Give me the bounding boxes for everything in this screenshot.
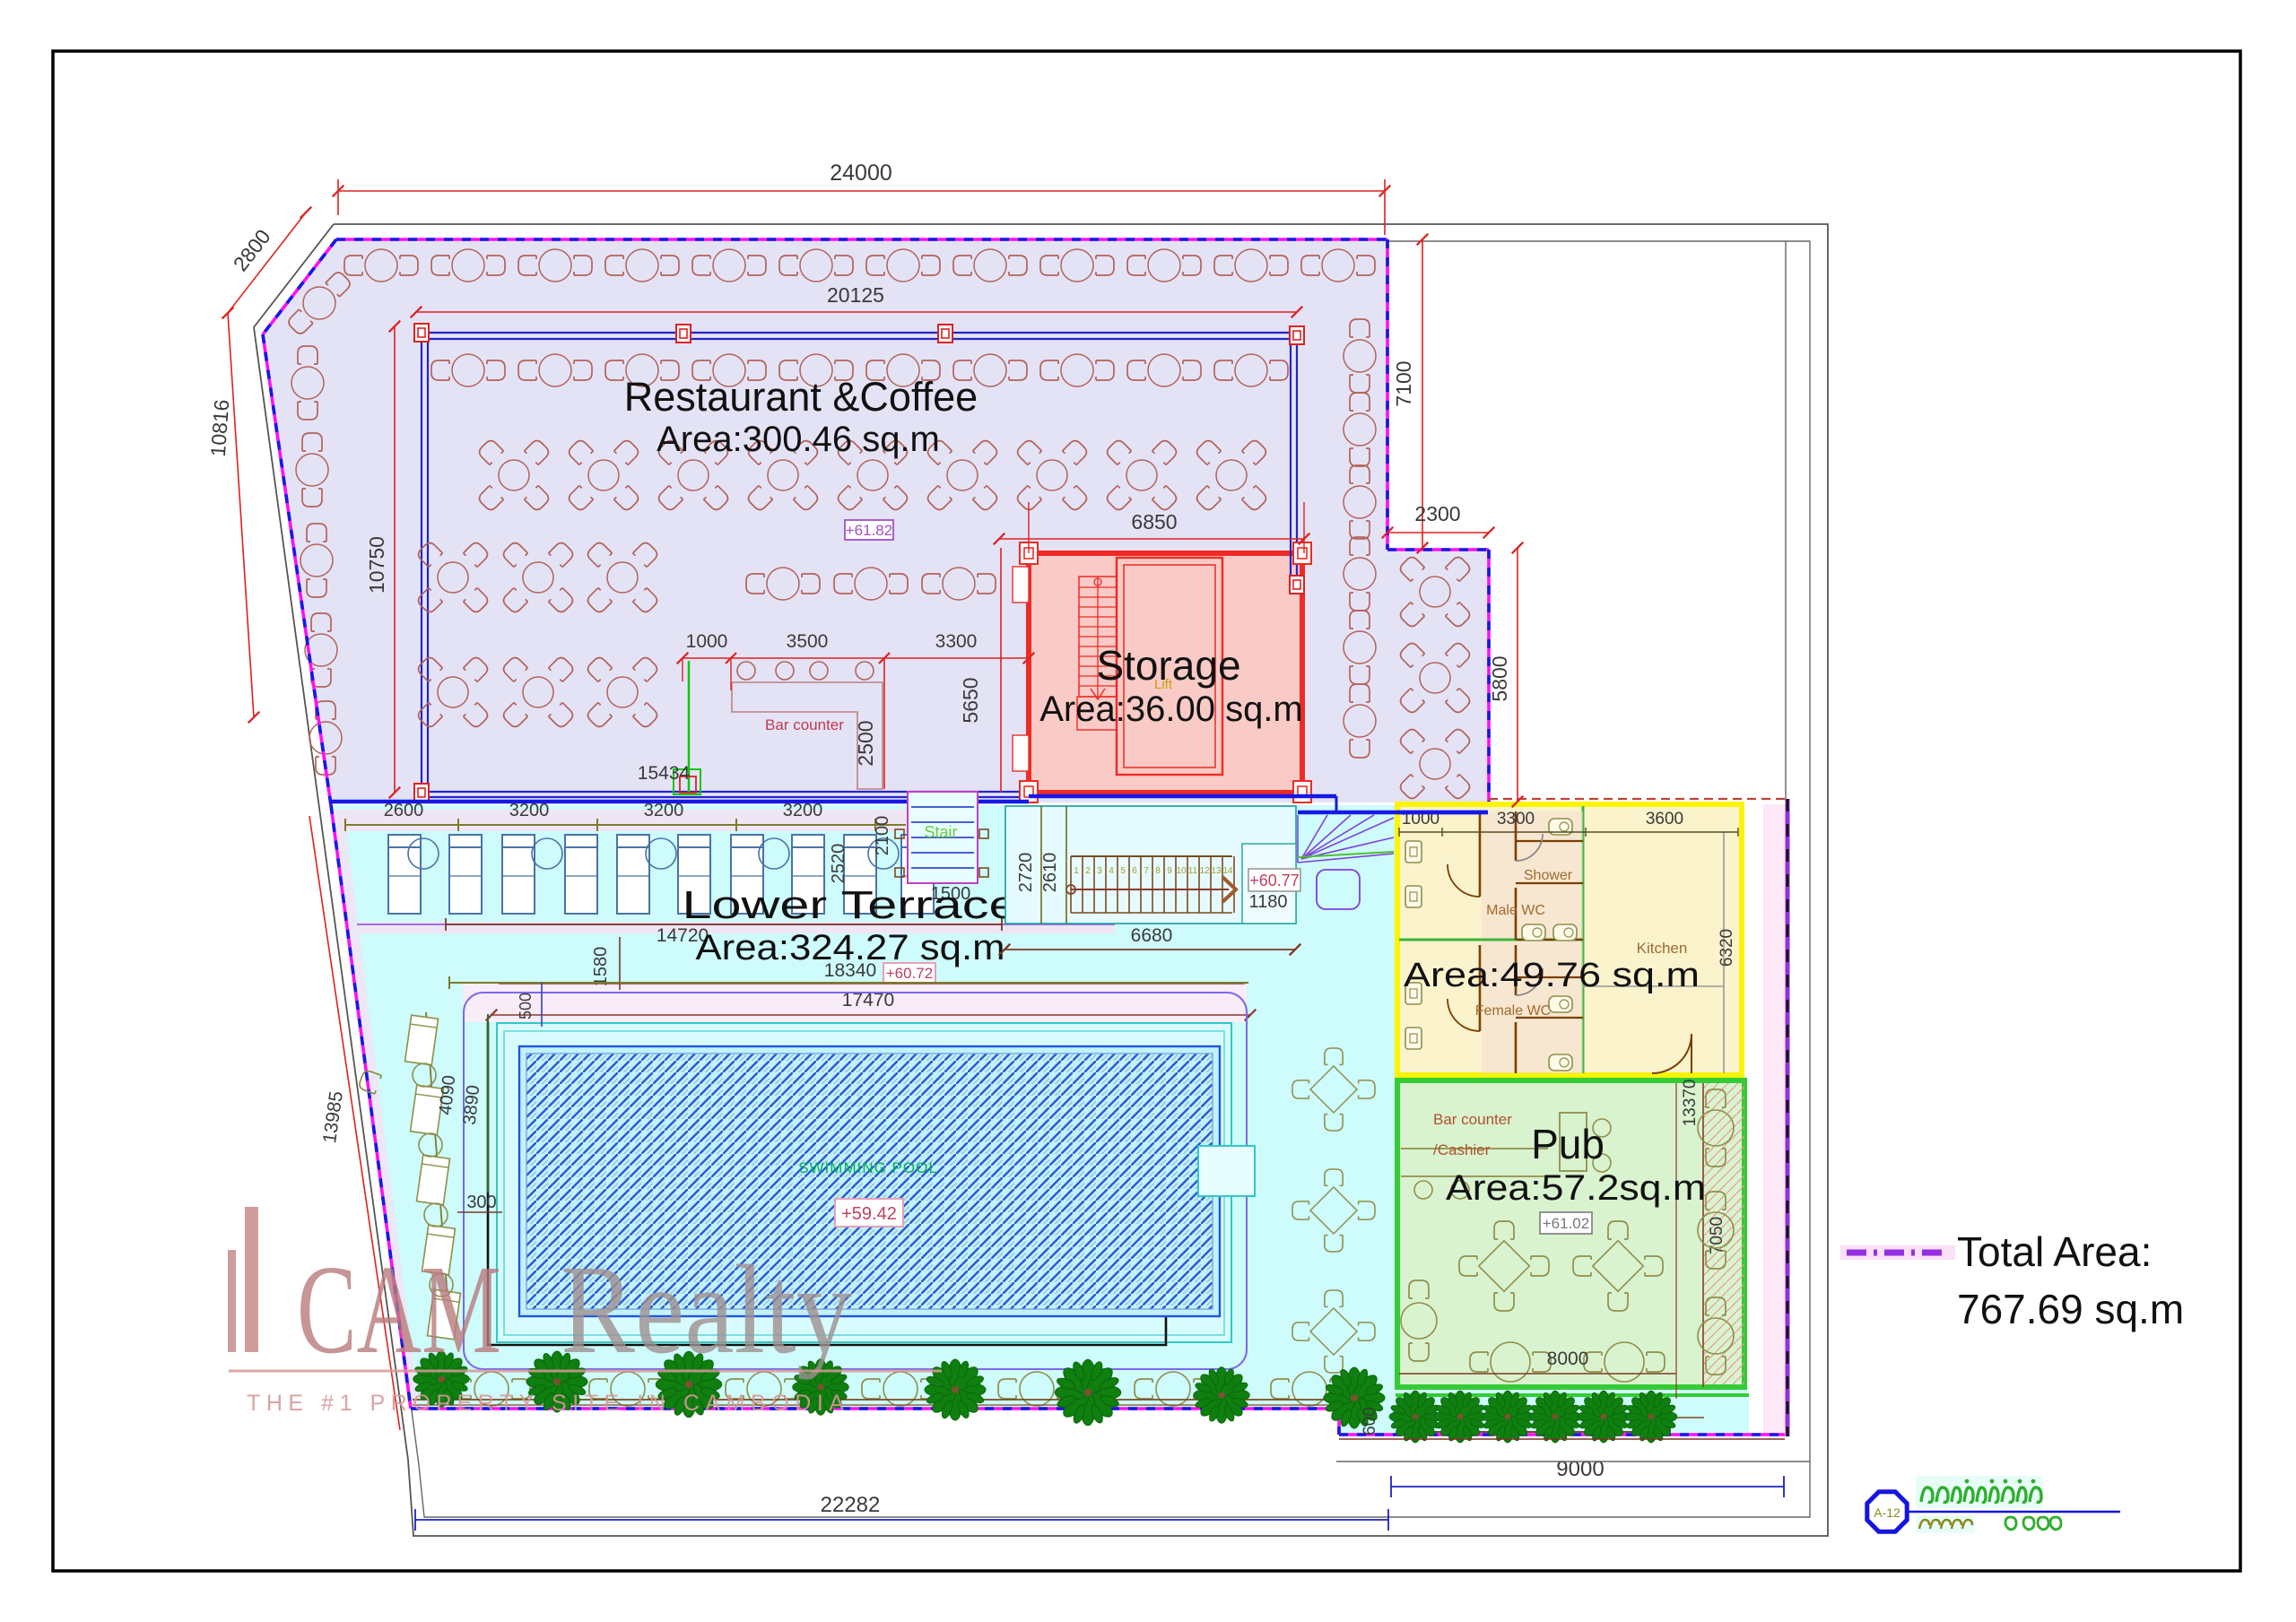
svg-text:6850: 6850 <box>1131 510 1177 533</box>
svg-text:3890: 3890 <box>460 1084 484 1126</box>
svg-text:12: 12 <box>1199 866 1210 876</box>
svg-text:Area:49.76 sq.m: Area:49.76 sq.m <box>1404 957 1700 994</box>
svg-text:2500: 2500 <box>854 720 877 766</box>
svg-text:3300: 3300 <box>935 631 978 652</box>
svg-text:3200: 3200 <box>644 801 684 820</box>
svg-text:Male WC: Male WC <box>1486 903 1545 918</box>
svg-text:11: 11 <box>1188 866 1198 876</box>
svg-text:600: 600 <box>1361 1407 1379 1436</box>
svg-text:18340: 18340 <box>824 960 876 981</box>
svg-text:3200: 3200 <box>509 801 550 820</box>
svg-text:13: 13 <box>1211 866 1222 876</box>
svg-text:15434: 15434 <box>638 763 691 784</box>
svg-text:10816: 10816 <box>206 399 233 458</box>
svg-text:CAM: CAM <box>297 1238 501 1380</box>
svg-text:+60.77: +60.77 <box>1249 872 1300 889</box>
svg-text:Bar counter: Bar counter <box>765 716 844 733</box>
svg-text:5: 5 <box>1120 866 1126 876</box>
svg-text:Total Area:: Total Area: <box>1957 1228 2152 1275</box>
svg-text:Area:36.00 sq.m: Area:36.00 sq.m <box>1039 690 1303 729</box>
svg-text:7100: 7100 <box>1392 360 1415 406</box>
svg-text:Storage: Storage <box>1096 642 1240 689</box>
svg-text:+59.42: +59.42 <box>841 1204 897 1224</box>
svg-text:5800: 5800 <box>1488 655 1511 701</box>
svg-text:2300: 2300 <box>1414 502 1460 525</box>
svg-text:/Cashier: /Cashier <box>1433 1141 1491 1158</box>
svg-text:Area:57.2sq.m: Area:57.2sq.m <box>1446 1168 1706 1208</box>
svg-text:1000: 1000 <box>686 631 728 652</box>
svg-text:Area:300.46 sq.m: Area:300.46 sq.m <box>657 420 940 459</box>
svg-text:6680: 6680 <box>1131 925 1173 946</box>
svg-text:2100: 2100 <box>873 816 892 856</box>
svg-text:Lower Terrace: Lower Terrace <box>683 883 1019 927</box>
svg-text:767.69 sq.m: 767.69 sq.m <box>1957 1286 2184 1332</box>
svg-text:24000: 24000 <box>830 160 892 186</box>
svg-text:8: 8 <box>1155 866 1161 876</box>
svg-text:Stair: Stair <box>924 823 957 841</box>
svg-text:THE #1 PROPERTY SITE IN CAMBOD: THE #1 PROPERTY SITE IN CAMBODIA <box>247 1391 850 1416</box>
svg-text:2600: 2600 <box>384 801 424 820</box>
svg-text:6: 6 <box>1132 866 1137 876</box>
svg-text:7: 7 <box>1144 866 1149 876</box>
svg-text:4090: 4090 <box>436 1074 460 1116</box>
svg-text:8000: 8000 <box>1547 1349 1589 1369</box>
svg-text:2: 2 <box>1085 866 1091 876</box>
svg-text:SWIMMING POOL: SWIMMING POOL <box>798 1159 938 1176</box>
svg-text:9: 9 <box>1167 866 1172 876</box>
svg-text:+61.82: +61.82 <box>846 522 892 539</box>
svg-text:Bar counter: Bar counter <box>1433 1111 1512 1128</box>
svg-text:500: 500 <box>517 993 535 1019</box>
svg-text:+60.72: +60.72 <box>886 965 933 982</box>
svg-text:300: 300 <box>466 1193 496 1212</box>
svg-text:3500: 3500 <box>787 631 829 652</box>
svg-text:Kitchen: Kitchen <box>1637 940 1688 957</box>
svg-text:20125: 20125 <box>827 283 884 307</box>
svg-text:2520: 2520 <box>829 844 848 884</box>
svg-text:3600: 3600 <box>1646 810 1683 828</box>
svg-text:+61.02: +61.02 <box>1543 1215 1589 1232</box>
svg-text:9000: 9000 <box>1556 1457 1604 1481</box>
svg-text:13370: 13370 <box>1681 1080 1700 1127</box>
svg-text:3300: 3300 <box>1497 810 1535 828</box>
svg-text:Realty: Realty <box>561 1238 852 1380</box>
svg-text:Female WC: Female WC <box>1475 1003 1551 1019</box>
svg-text:6320: 6320 <box>1718 929 1736 967</box>
svg-text:10750: 10750 <box>365 536 388 594</box>
svg-text:Shower: Shower <box>1524 868 1573 883</box>
svg-text:14: 14 <box>1222 866 1233 876</box>
svg-text:10: 10 <box>1176 866 1187 876</box>
svg-text:7050: 7050 <box>1708 1217 1726 1254</box>
svg-text:Restaurant &Coffee: Restaurant &Coffee <box>624 374 978 420</box>
svg-text:2720: 2720 <box>1016 853 1036 893</box>
svg-text:4: 4 <box>1109 866 1114 876</box>
svg-text:5650: 5650 <box>959 677 982 723</box>
svg-text:3: 3 <box>1097 866 1102 876</box>
svg-text:3200: 3200 <box>783 801 823 820</box>
svg-text:1580: 1580 <box>591 947 611 987</box>
svg-text:1180: 1180 <box>1248 892 1287 912</box>
svg-text:Pub: Pub <box>1531 1121 1605 1167</box>
svg-text:1: 1 <box>1074 866 1079 876</box>
svg-text:22282: 22282 <box>821 1493 881 1517</box>
svg-text:2610: 2610 <box>1040 853 1060 893</box>
svg-text:A-12: A-12 <box>1874 1505 1900 1520</box>
